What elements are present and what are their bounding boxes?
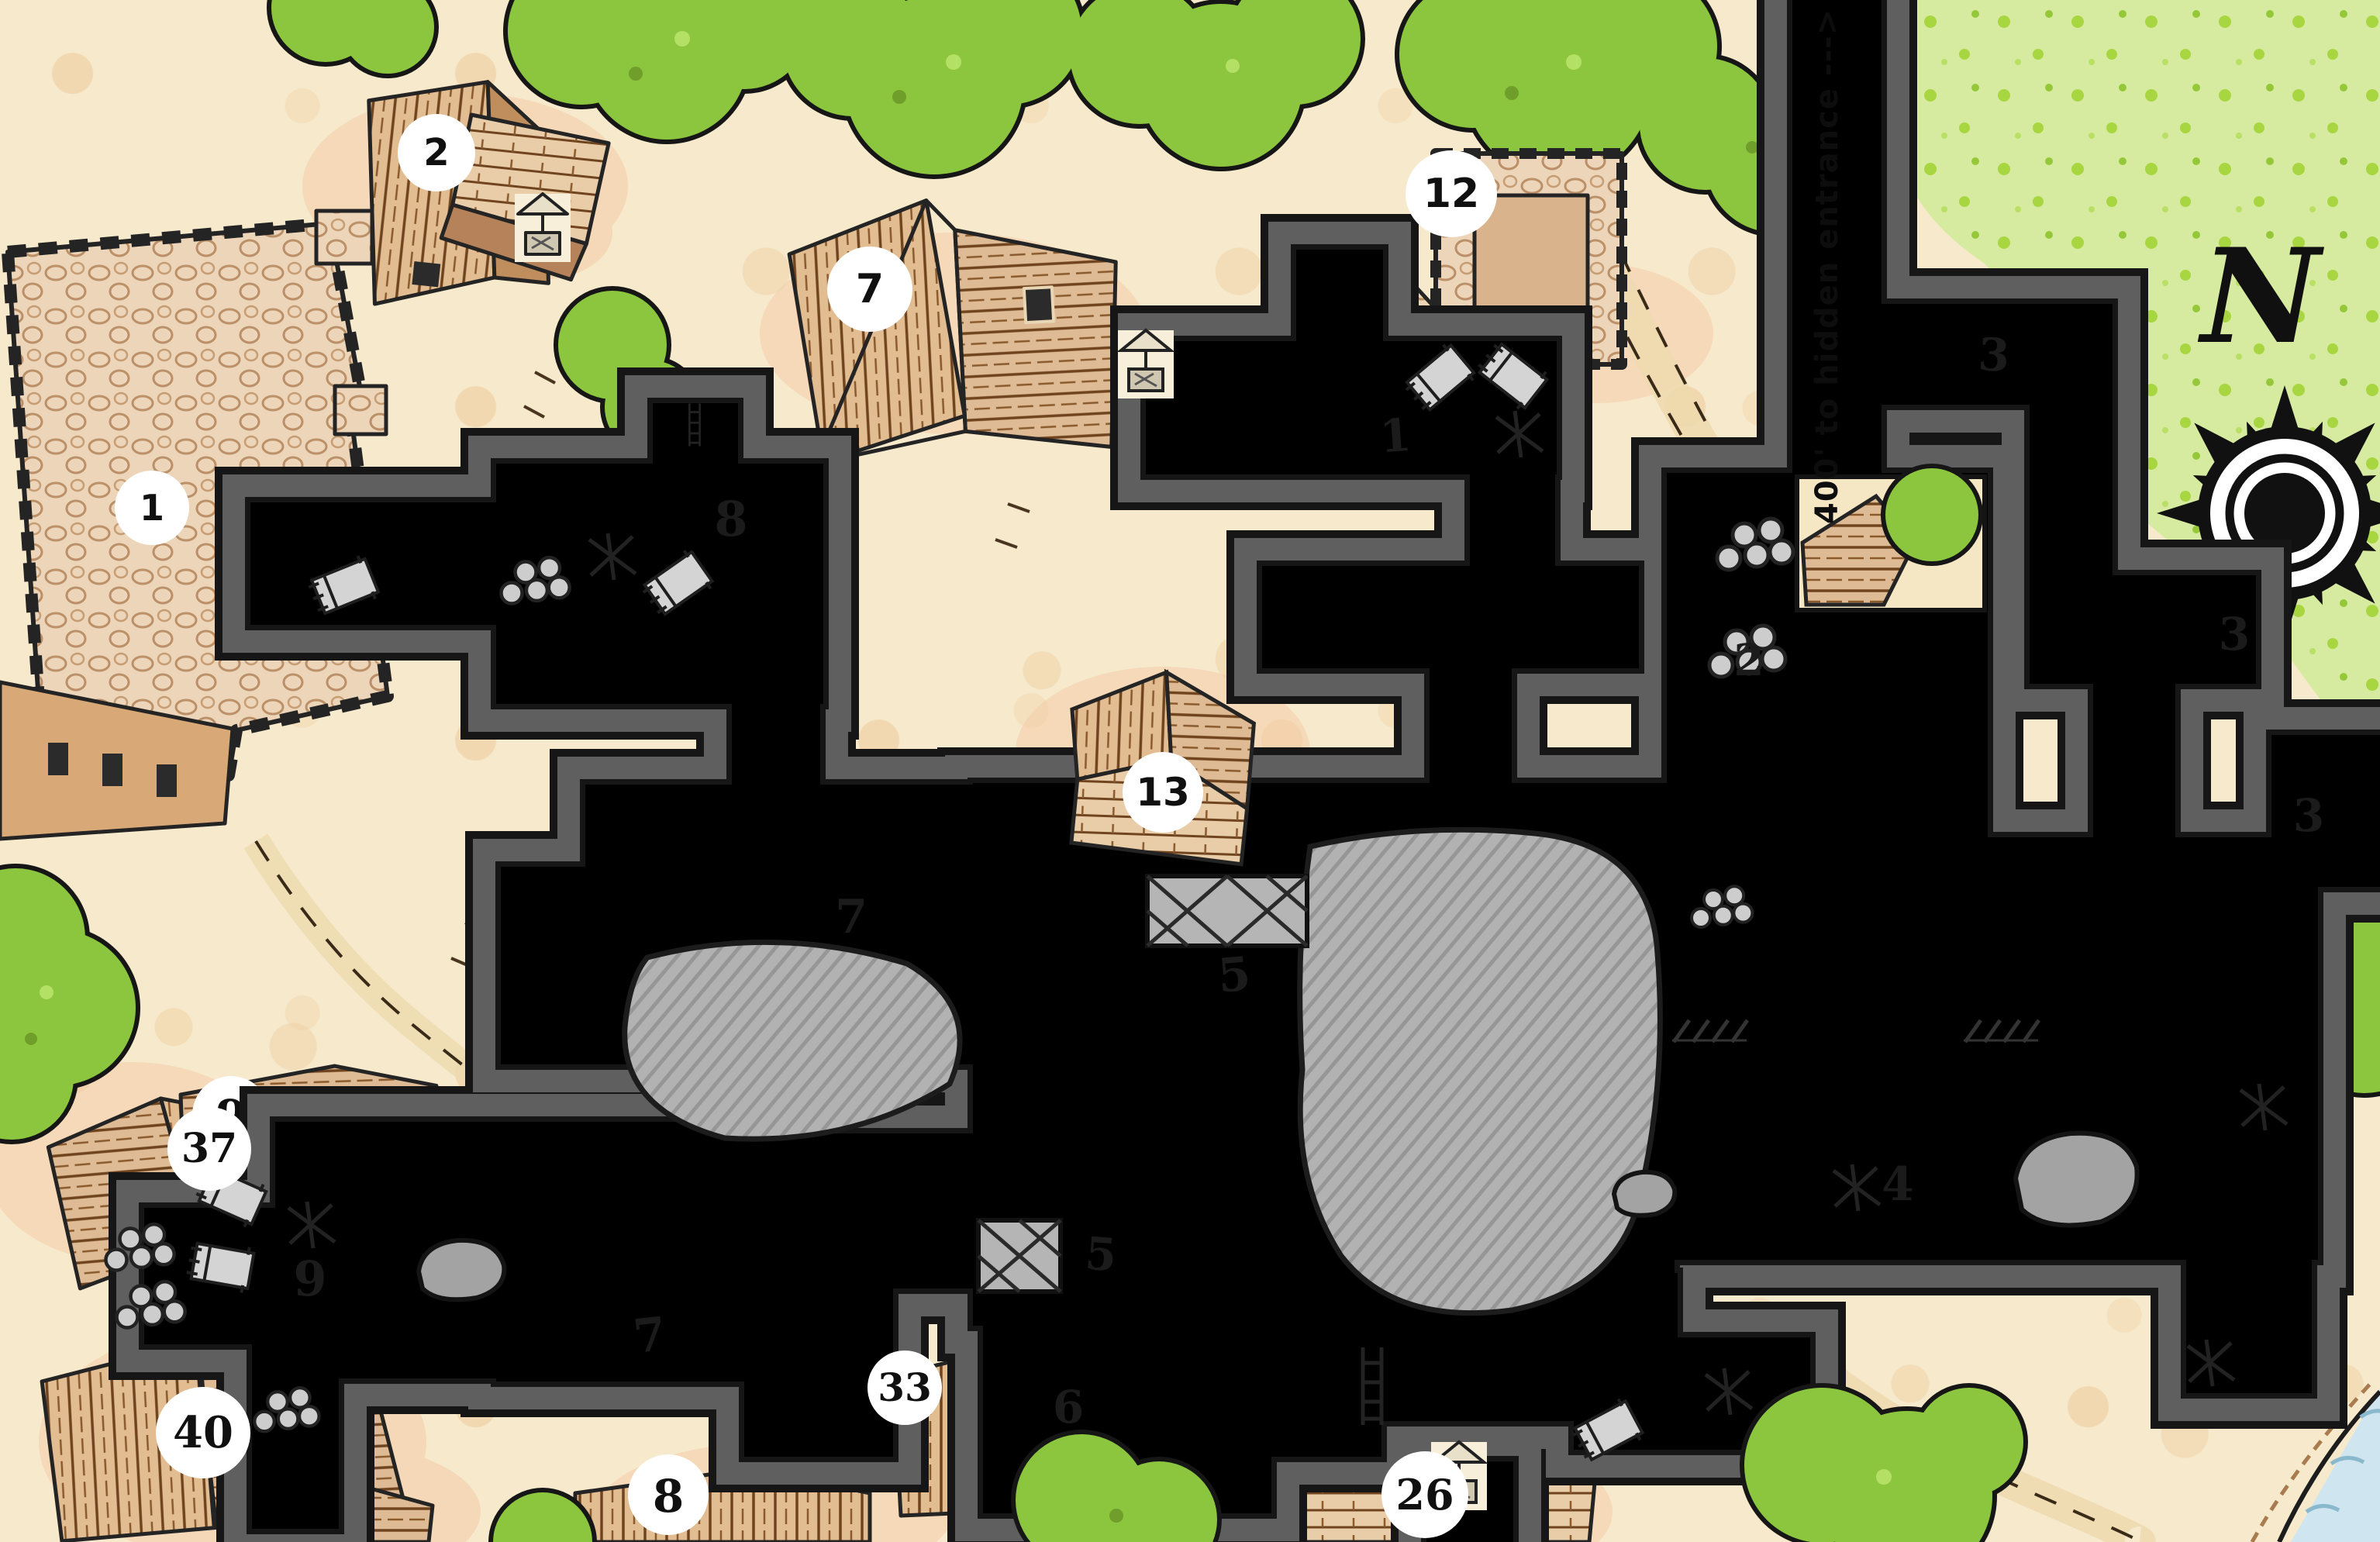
trapdoor-icon	[978, 1220, 1061, 1292]
dungeon-label-3b: 3	[2219, 612, 2250, 657]
village-label-26: 26	[1381, 1451, 1468, 1538]
village-label-12: 12	[1406, 150, 1497, 237]
dungeon-label-8: 8	[714, 495, 747, 543]
label-partial-bottom: 8	[653, 1470, 684, 1523]
dungeon-label-1: 1	[1378, 412, 1412, 460]
village-label-37: 37	[167, 1107, 251, 1191]
well-icon	[515, 194, 571, 262]
dungeon-label-7a: 7	[835, 894, 867, 940]
village-label-7: 7	[827, 247, 912, 332]
village-label-40: 40	[156, 1387, 250, 1478]
dungeon-label-5a: 5	[1216, 950, 1253, 999]
dungeon-label-6: 6	[1053, 1385, 1084, 1430]
village-label-13: 13	[1123, 752, 1203, 833]
dungeon-label-5b: 5	[1084, 1231, 1118, 1278]
dungeon-label-9: 9	[293, 1255, 326, 1303]
dungeon-label-3c: 3	[2293, 793, 2324, 838]
hidden-entrance-note: 400' to hidden entrance --->	[1809, 26, 1847, 524]
dungeon-label-4: 4	[1882, 1161, 1914, 1208]
shoreline-water	[2252, 1380, 2380, 1542]
compass-north-letter: N	[2201, 219, 2320, 373]
dungeon-label-7b: 7	[631, 1311, 668, 1361]
trapdoor-icon	[1147, 876, 1307, 946]
dungeon-label-3a: 3	[1977, 332, 2010, 378]
dungeon-label-2: 2	[1734, 639, 1764, 682]
village-label-1: 1	[115, 471, 189, 545]
well-icon	[1118, 330, 1174, 398]
fantasy-village-dungeon-map: 9 8	[0, 0, 2380, 1542]
village-label-2: 2	[398, 114, 475, 191]
village-label-33: 33	[867, 1351, 942, 1425]
